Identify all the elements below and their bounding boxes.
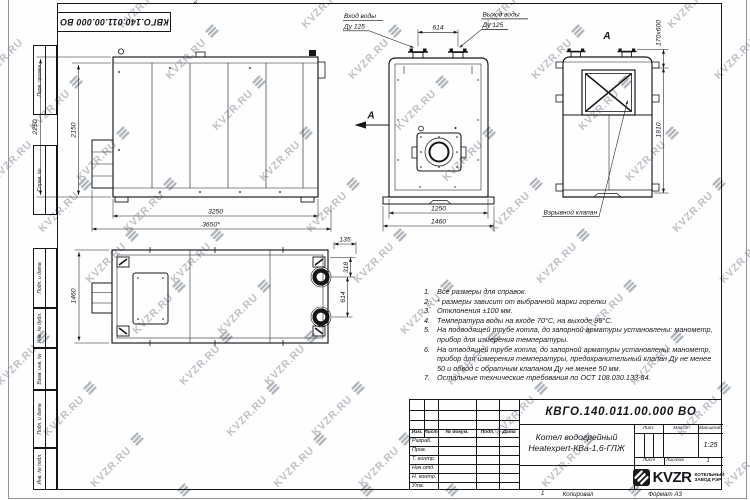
- tb-company-sub2: ЗАВОД РЭР: [694, 477, 724, 482]
- note-text: Остальные технические требования по ОСТ …: [437, 373, 717, 383]
- view-a-arrow-label: А: [366, 111, 374, 122]
- explosion-valve-label: Взрывной клапан: [544, 209, 598, 217]
- tb-col-dokum: № докум.: [438, 429, 476, 437]
- dim-plan-edge: 135: [339, 236, 351, 243]
- note-item: 2.* размеры зависит от выбранной марки г…: [424, 297, 717, 307]
- note-text: На отводящей трубе котла, до запорной ар…: [437, 345, 717, 374]
- note-item: 3.Отклонения ±100 мм.: [424, 306, 717, 316]
- note-number: 1.: [424, 287, 437, 297]
- tb-scale-value: 1:25: [698, 433, 723, 457]
- note-number: 2.: [424, 297, 437, 307]
- tb-row-tkontr: Т. контр.: [412, 455, 452, 464]
- note-item: 1.Все размеры для справок.: [424, 287, 717, 297]
- rear-view: [543, 49, 669, 217]
- kvzr-logo-icon: [633, 469, 650, 486]
- tb-product-line2: Heatexpert-КВа-1,6-ГЛЖ: [519, 443, 634, 454]
- note-item: 6.На отводящей трубе котла, до запорной …: [424, 345, 717, 374]
- dim-plan-width: 1460: [71, 288, 78, 303]
- dim-plan-pipes: 614: [340, 291, 347, 303]
- tb-sheet-label: Лист: [634, 457, 664, 465]
- note-number: 7.: [424, 373, 437, 383]
- dim-front-width-outer: 1460: [431, 219, 446, 226]
- tb-product-name: Котел водогрейный Heatexpert-КВа-1,6-ГЛЖ: [519, 424, 634, 465]
- note-text: На подводящей трубе котла, до запорной а…: [437, 325, 717, 344]
- view-a-arrow: [355, 121, 367, 128]
- dim-side-height-outer: 2250: [32, 119, 39, 135]
- tb-row-prov: Пров.: [412, 446, 452, 455]
- note-number: 3.: [424, 306, 437, 316]
- dim-rear-valve: 170х600: [656, 20, 663, 46]
- inlet-label-line2: Ду 125: [343, 24, 365, 31]
- drawing-sheet: KVZR.RUKVZR.RUKVZR.RUKVZR.RUKVZR.RUKVZR.…: [0, 0, 750, 500]
- side-view: [37, 49, 332, 232]
- note-number: 6.: [424, 345, 437, 374]
- dim-side-length-outer: 3650*: [202, 222, 220, 229]
- inlet-label-line1: Вход воды: [344, 12, 376, 20]
- outlet-label-line1: Выход воды: [483, 11, 520, 19]
- plan-view: [75, 242, 357, 346]
- note-number: 5.: [424, 325, 437, 344]
- note-text: Все размеры для справок.: [437, 287, 717, 297]
- title-block: Изм. Лист № докум. Подп. Дата Разраб. Пр…: [409, 399, 722, 490]
- tb-row-nkontr: Н. контр.: [412, 473, 452, 482]
- tb-col-data: Дата: [499, 429, 519, 437]
- tb-product-line1: Котел водогрейный: [519, 432, 634, 443]
- note-text: Отклонения ±100 мм.: [437, 306, 717, 316]
- dim-rear-height: 1910: [656, 122, 663, 137]
- tb-col-izm: Изм.: [410, 429, 424, 437]
- dim-side-length-inner: 3250: [208, 209, 223, 216]
- technical-notes: 1.Все размеры для справок. 2.* размеры з…: [424, 287, 717, 383]
- tb-company-name: KVZR: [653, 470, 692, 485]
- dim-front-pipes: 614: [432, 25, 444, 32]
- note-text: * размеры зависит от выбранной марки гор…: [437, 297, 717, 307]
- note-text: Температура воды на входе 70°С, на выход…: [437, 316, 717, 326]
- outlet-label-line2: Ду 125: [482, 22, 504, 29]
- tb-doc-number: КВГО.140.011.00.000 ВО: [519, 400, 723, 424]
- footer-copied: Копировал: [543, 491, 613, 498]
- note-item: 4.Температура воды на входе 70°С, на вых…: [424, 316, 717, 326]
- dim-front-width-inner: 1250: [431, 206, 446, 213]
- tb-col-list: Лист: [424, 429, 438, 437]
- dim-side-height-inner: 2150: [71, 122, 78, 138]
- tb-sheets-label: Листов: [666, 457, 696, 465]
- dim-plan-pipe: 318: [343, 262, 350, 274]
- tb-row-razrab: Разраб.: [412, 437, 452, 446]
- note-item: 7.Остальные технические требования по ОС…: [424, 373, 717, 383]
- footer-format: Формат А3: [630, 491, 700, 498]
- tb-scale-label: Масштаб: [698, 424, 723, 433]
- tb-sheets-value: 1: [700, 457, 716, 465]
- tb-col-podp: Подп.: [476, 429, 499, 437]
- rear-view-label: А: [602, 31, 610, 42]
- front-view: [343, 19, 528, 232]
- note-number: 4.: [424, 316, 437, 326]
- tb-company: KVZR КОТЕЛЬНЫЙ ЗАВОД РЭР: [634, 465, 723, 489]
- tb-row-nachotd: Нач.отд.: [412, 464, 452, 473]
- tb-mass-label: Масса: [663, 424, 698, 433]
- tb-lit-label: Лит.: [634, 424, 663, 433]
- note-item: 5.На подводящей трубе котла, до запорной…: [424, 325, 717, 344]
- tb-row-utv: Утв.: [412, 482, 452, 491]
